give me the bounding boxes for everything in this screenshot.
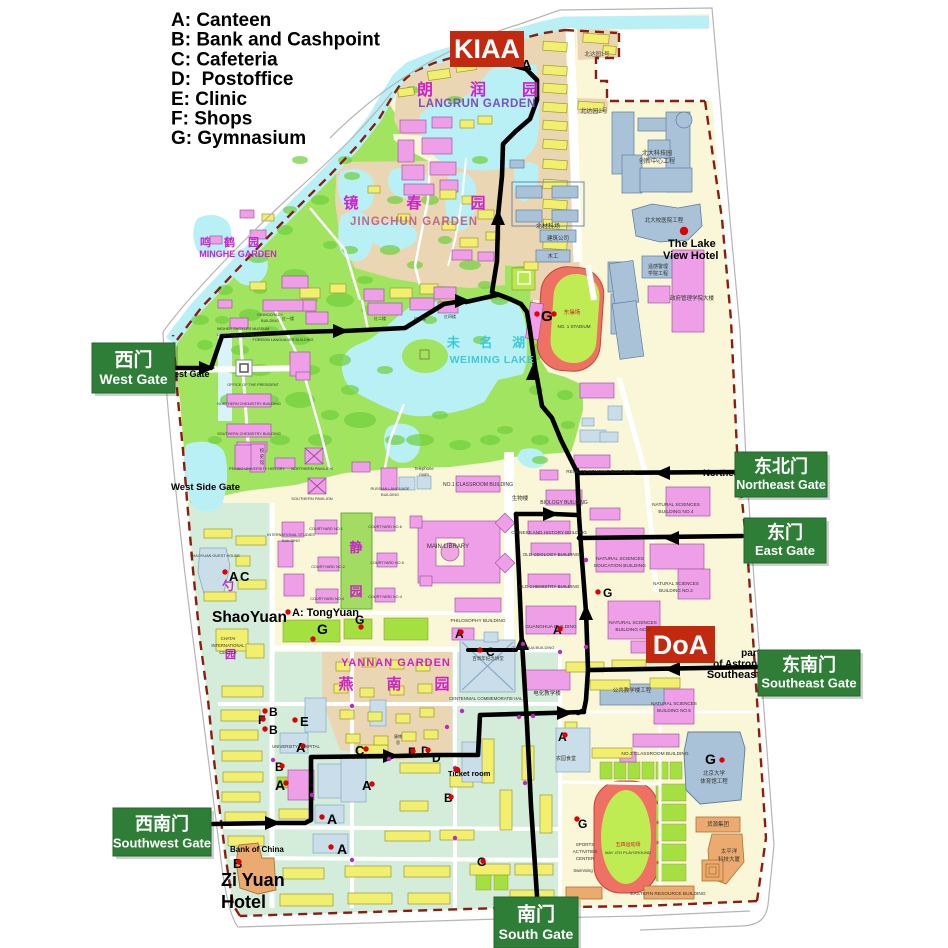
svg-text:朗: 朗 — [417, 80, 433, 99]
svg-text:百周年纪念讲堂: 百周年纪念讲堂 — [472, 655, 504, 662]
svg-text:润: 润 — [470, 80, 486, 99]
svg-text:Hotel: Hotel — [221, 892, 266, 912]
svg-text:D: Postoffice: D: Postoffice — [171, 69, 293, 90]
svg-text:The Lake: The Lake — [668, 238, 716, 250]
svg-text:创新中心工程: 创新中心工程 — [639, 157, 675, 165]
svg-text:GEIMOCRACY: GEIMOCRACY — [257, 313, 283, 317]
svg-text:REMOTE SENSING BUILDING: REMOTE SENSING BUILDING — [566, 469, 634, 475]
svg-text:EASTERN RESOURCE BUILDING: EASTERN RESOURCE BUILDING — [630, 891, 705, 897]
svg-text:园: 园 — [522, 81, 538, 99]
svg-text:West Gate: West Gate — [99, 371, 167, 387]
svg-text:FOREIGN LANGUAGES BUILDING: FOREIGN LANGUAGES BUILDING — [253, 338, 314, 342]
svg-text:CHINESE AND HISTORY BUILDING: CHINESE AND HISTORY BUILDING — [511, 530, 587, 535]
svg-text:南门: 南门 — [517, 902, 555, 925]
svg-text:COURTYARD NO.4: COURTYARD NO.4 — [310, 597, 344, 601]
svg-text:BUILDING: BUILDING — [282, 539, 300, 543]
svg-text:NO.1 CLASSROOM BUILDING: NO.1 CLASSROOM BUILDING — [443, 482, 513, 488]
svg-text:CENTER: CENTER — [219, 650, 236, 655]
svg-text:史: 史 — [260, 453, 265, 460]
svg-text:YANNAN GARDEN: YANNAN GARDEN — [341, 657, 451, 669]
svg-text:View Hotel: View Hotel — [663, 250, 718, 262]
svg-text:INTERNATIONAL: INTERNATIONAL — [211, 643, 245, 648]
svg-text:电化教学楼: 电化教学楼 — [533, 689, 561, 697]
svg-text:NATURAL SCIENCES: NATURAL SCIENCES — [596, 556, 644, 562]
svg-text:WEIMING LAKE: WEIMING LAKE — [450, 354, 535, 366]
svg-text:room: room — [419, 472, 429, 477]
svg-text:东操场: 东操场 — [564, 308, 581, 316]
svg-text:NATURAL SCIENCES: NATURAL SCIENCES — [652, 502, 700, 508]
svg-text:Zi Yuan: Zi Yuan — [221, 870, 285, 890]
svg-text:COURTYARD NO.6: COURTYARD NO.6 — [368, 525, 402, 529]
svg-text:BUILDING NO.5: BUILDING NO.5 — [657, 708, 691, 713]
svg-text:OLD GEOLOGY BUILDING: OLD GEOLOGY BUILDING — [523, 552, 580, 557]
svg-text:JINGCHUN GARDEN: JINGCHUN GARDEN — [350, 216, 478, 228]
svg-text:KIAA: KIAA — [454, 34, 520, 64]
svg-text:勺: 勺 — [222, 578, 234, 593]
svg-text:B: B — [269, 705, 278, 719]
svg-text:太平洋: 太平洋 — [721, 847, 738, 855]
svg-text:SPORTS: SPORTS — [576, 842, 594, 847]
svg-text:Northea: Northea — [703, 468, 740, 479]
svg-text:体育馆工程: 体育馆工程 — [700, 777, 728, 785]
svg-text:静: 静 — [349, 540, 362, 555]
svg-text:遥感警理: 遥感警理 — [648, 263, 668, 270]
svg-text:est Gate: est Gate — [174, 369, 210, 379]
svg-text:SOUTHERN CHEMISTRY BUILDING: SOUTHERN CHEMISTRY BUILDING — [217, 432, 281, 436]
svg-text:G: G — [705, 751, 716, 767]
svg-text:北达园2号: 北达园2号 — [580, 107, 607, 115]
svg-text:A: A — [275, 777, 285, 793]
svg-text:镜: 镜 — [343, 194, 358, 212]
svg-text:Southeast Gate: Southeast Gate — [761, 676, 856, 691]
svg-text:鸣 鹤 园: 鸣 鹤 园 — [200, 235, 264, 249]
svg-text:PEKING UNIVERSITY HISTORY: PEKING UNIVERSITY HISTORY — [229, 467, 285, 471]
svg-text:NO.3 CLASSROOM BUILDING: NO.3 CLASSROOM BUILDING — [621, 751, 688, 757]
svg-text:C: C — [240, 569, 250, 584]
svg-text:E: Clinic: E: Clinic — [171, 89, 247, 110]
svg-text:Swimming: Swimming — [573, 868, 593, 873]
svg-text:北京大学: 北京大学 — [703, 769, 726, 777]
svg-text:CENTENNIAL COMMEMORATIE HALL: CENTENNIAL COMMEMORATIE HALL — [449, 696, 526, 701]
svg-text:GUANGHUA BUILDING: GUANGHUA BUILDING — [525, 624, 577, 630]
svg-text:南: 南 — [386, 675, 401, 693]
svg-text:春: 春 — [406, 194, 421, 212]
svg-text:South Gate: South Gate — [499, 926, 574, 942]
svg-text:红二楼: 红二楼 — [374, 315, 386, 321]
svg-text:NORTHERN CHEMISTRY BUILDING: NORTHERN CHEMISTRY BUILDING — [217, 402, 281, 406]
svg-text:PHILOSOPHY BUILDING: PHILOSOPHY BUILDING — [450, 618, 505, 624]
svg-text:NATURAL SCIENCES: NATURAL SCIENCES — [651, 701, 697, 706]
svg-text:建筑公司: 建筑公司 — [547, 234, 569, 242]
svg-text:B: B — [269, 723, 278, 737]
svg-text:OLD CHEMISTRY BUILDING: OLD CHEMISTRY BUILDING — [519, 584, 580, 589]
svg-text:Southeast: Southeast — [707, 669, 761, 681]
svg-text:COURTYARD NO.2: COURTYARD NO.2 — [311, 565, 345, 569]
svg-text:东门: 东门 — [767, 522, 803, 543]
svg-text:E: E — [300, 714, 309, 729]
svg-text:COURTYARD NO.1: COURTYARD NO.1 — [309, 527, 343, 531]
svg-text:CHATAI: CHATAI — [221, 636, 236, 641]
svg-text:SOUTHERN PAVILION: SOUTHERN PAVILION — [291, 496, 333, 501]
svg-text:科技大厦: 科技大厦 — [718, 855, 741, 863]
svg-text:Northeast Gate: Northeast Gate — [736, 478, 826, 492]
svg-text:A: A — [337, 841, 347, 857]
svg-text:B: Bank and Cashpoint: B: Bank and Cashpoint — [171, 30, 381, 51]
svg-text:G: G — [317, 621, 328, 637]
svg-text:RUSSIAN LANGUAGE: RUSSIAN LANGUAGE — [370, 487, 410, 491]
svg-text:北达园1号: 北达园1号 — [584, 50, 610, 58]
svg-text:园: 园 — [349, 584, 362, 599]
svg-text:园: 园 — [434, 676, 449, 693]
svg-text:WEIHER SHOXLER MUSEUM: WEIHER SHOXLER MUSEUM — [217, 327, 269, 331]
svg-text:货源集团: 货源集团 — [707, 820, 730, 828]
svg-text:East Gate: East Gate — [755, 543, 815, 558]
svg-text:SHAOYUAN GUEST HOUSE: SHAOYUAN GUEST HOUSE — [190, 554, 240, 558]
svg-text:政府管理学院大楼: 政府管理学院大楼 — [670, 294, 715, 302]
svg-text:ShaoYuan: ShaoYuan — [212, 609, 287, 626]
svg-text:五四运动场: 五四运动场 — [615, 841, 640, 848]
svg-text:燕: 燕 — [338, 675, 353, 693]
svg-text:G: Gymnasium: G: Gymnasium — [171, 128, 306, 149]
svg-text:学院工程: 学院工程 — [648, 270, 668, 277]
svg-text:F: Shops: F: Shops — [171, 109, 252, 130]
svg-text:红三楼: 红三楼 — [414, 315, 426, 321]
svg-text:东南门: 东南门 — [782, 654, 836, 675]
svg-text:UNIVERSITY HOSPITAL: UNIVERSITY HOSPITAL — [272, 744, 320, 749]
svg-text:Ticket room: Ticket room — [448, 769, 491, 778]
svg-text:A: TongYuan: A: TongYuan — [292, 607, 359, 619]
svg-text:Telephone: Telephone — [414, 466, 434, 471]
svg-text:西南门: 西南门 — [135, 813, 189, 834]
svg-text:MAIN LIBRARY: MAIN LIBRARY — [427, 544, 469, 550]
svg-text:Southwest Gate: Southwest Gate — [113, 835, 211, 850]
svg-text:北大科技园: 北大科技园 — [642, 149, 672, 157]
svg-text:BIOLOGY BUILDING: BIOLOGY BUILDING — [540, 500, 588, 506]
svg-text:思: 思 — [396, 740, 400, 745]
svg-text:C: C — [355, 743, 365, 758]
svg-text:DoA: DoA — [653, 630, 709, 660]
svg-text:园: 园 — [470, 195, 485, 212]
svg-text:未 名 湖: 未 名 湖 — [446, 335, 533, 350]
svg-text:West Side Gate: West Side Gate — [171, 482, 240, 493]
svg-text:EDUCATION BUILDING: EDUCATION BUILDING — [594, 563, 646, 569]
svg-text:馆: 馆 — [260, 459, 265, 466]
svg-text:COURTYARD NO.5: COURTYARD NO.5 — [370, 561, 404, 565]
svg-text:CENTER: CENTER — [576, 856, 595, 861]
svg-text:东北门: 东北门 — [754, 456, 808, 477]
svg-text:G: G — [603, 586, 612, 600]
svg-text:西门: 西门 — [114, 348, 152, 371]
svg-text:ACTIVITIES: ACTIVITIES — [573, 849, 598, 854]
svg-text:NATURAL SCIENCES: NATURAL SCIENCES — [653, 581, 699, 586]
svg-text:LANGRUN GARDEN: LANGRUN GARDEN — [418, 98, 536, 110]
svg-text:BUILDING NO.4: BUILDING NO.4 — [658, 509, 694, 515]
svg-text:北材科场: 北材科场 — [536, 222, 560, 230]
svg-text:生物楼: 生物楼 — [512, 494, 529, 502]
svg-text:MAY 4TH PLAYGROUND: MAY 4TH PLAYGROUND — [605, 850, 651, 855]
svg-text:公共教学楼工程: 公共教学楼工程 — [613, 686, 652, 694]
svg-text:BUILDING: BUILDING — [261, 319, 279, 323]
svg-text:红一楼: 红一楼 — [282, 315, 294, 321]
svg-text:Bank of China: Bank of China — [230, 845, 284, 854]
svg-text:康博: 康博 — [394, 733, 402, 739]
svg-text:校: 校 — [260, 447, 265, 454]
svg-text:NORTHERN PAVILION: NORTHERN PAVILION — [291, 466, 333, 471]
svg-text:北大校医院工程: 北大校医院工程 — [645, 216, 684, 224]
svg-text:INTERNATIONAL STUDIES: INTERNATIONAL STUDIES — [267, 533, 315, 537]
svg-text:OFFICE OF THE PRESIDENT: OFFICE OF THE PRESIDENT — [227, 383, 279, 387]
svg-text:NO. 1 STADIUM: NO. 1 STADIUM — [558, 324, 591, 329]
svg-text:NATURAL SCIENCES: NATURAL SCIENCES — [609, 620, 657, 626]
svg-text:A: Canteen: A: Canteen — [171, 10, 271, 31]
svg-text:GUANGHUA BUILDING: GUANGHUA BUILDING — [512, 645, 555, 650]
svg-text:G: G — [541, 308, 553, 325]
svg-text:农园食堂: 农园食堂 — [556, 755, 576, 762]
svg-text:红四楼: 红四楼 — [444, 313, 456, 319]
svg-text:BUILDING: BUILDING — [381, 493, 399, 497]
svg-text:BUILDING NO.2: BUILDING NO.2 — [659, 588, 693, 593]
svg-text:D: D — [432, 751, 441, 765]
svg-text:A: A — [327, 811, 337, 827]
svg-text:C: Cafeteria: C: Cafeteria — [171, 49, 278, 70]
svg-text:MINGHE GARDEN: MINGHE GARDEN — [199, 249, 277, 259]
svg-text:COURTYARD NO.4: COURTYARD NO.4 — [368, 595, 402, 599]
svg-text:BUILDING NO.1: BUILDING NO.1 — [615, 627, 651, 633]
svg-text:木工: 木工 — [547, 252, 559, 260]
svg-text:OF ART AND ARCHAEOLOGY: OF ART AND ARCHAEOLOGY — [217, 333, 270, 337]
